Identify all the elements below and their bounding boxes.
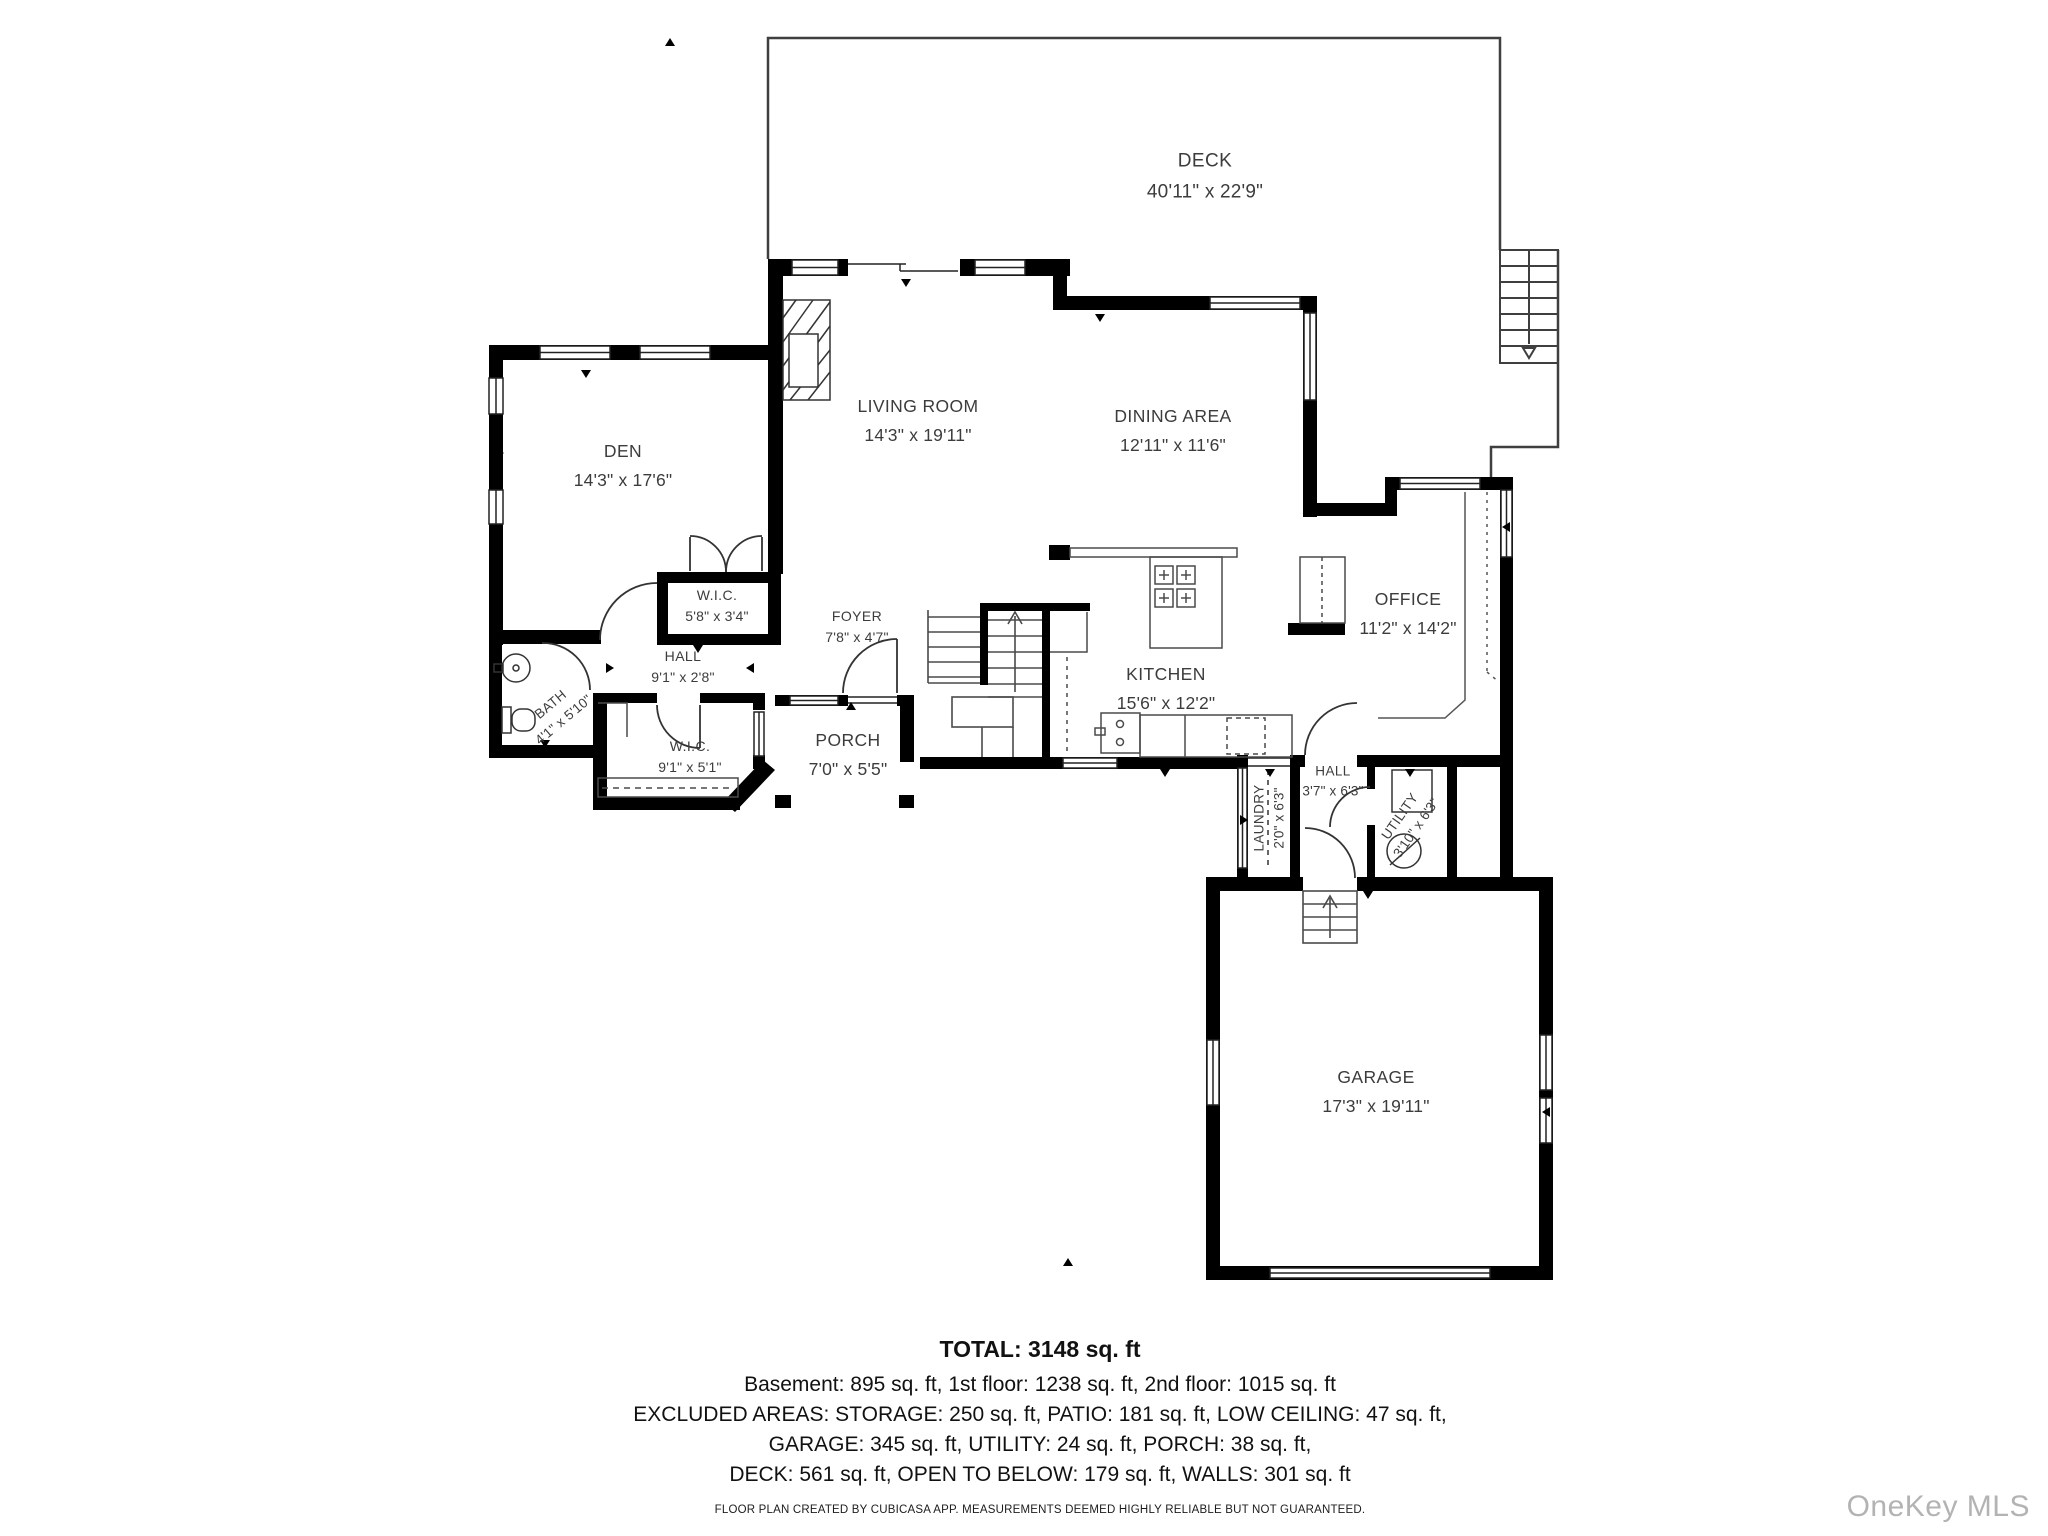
room-name: HALL — [1302, 761, 1363, 781]
disclaimer-text: FLOOR PLAN CREATED BY CUBICASA APP. MEAS… — [540, 1504, 1540, 1516]
room-dims: 14'3" x 19'11" — [857, 421, 978, 450]
floorplan-page: DECK 40'11" x 22'9" DEN 14'3" x 17'6" LI… — [0, 0, 2048, 1536]
sliding-door — [848, 259, 960, 276]
room-dims: 3'7" x 6'3" — [1302, 781, 1363, 801]
room-dims: 7'0" x 5'5" — [809, 755, 888, 784]
room-name: DECK — [1147, 146, 1263, 177]
room-dims: 11'2" x 14'2" — [1359, 614, 1456, 643]
room-dims: 9'1" x 2'8" — [651, 667, 714, 688]
room-label-dining: DINING AREA 12'11" x 11'6" — [1114, 402, 1231, 460]
room-label-den: DEN 14'3" x 17'6" — [574, 437, 673, 495]
floorplan-svg — [0, 0, 2048, 1536]
room-label-hall-main: HALL 9'1" x 2'8" — [651, 646, 714, 688]
room-name: W.I.C. — [685, 585, 748, 606]
room-name: OFFICE — [1359, 585, 1456, 614]
summary-line-garage: GARAGE: 345 sq. ft, UTILITY: 24 sq. ft, … — [540, 1430, 1540, 1460]
kitchen-counter — [1050, 548, 1345, 757]
laundry-sill — [1248, 758, 1290, 766]
room-name: DEN — [574, 437, 673, 466]
room-dims: 2'0" x 6'3" — [1269, 784, 1289, 851]
room-dims: 14'3" x 17'6" — [574, 466, 673, 495]
total-area: TOTAL: 3148 sq. ft — [540, 1336, 1540, 1363]
watermark-onekey-mls: OneKey MLS — [1847, 1490, 2030, 1524]
room-label-living: LIVING ROOM 14'3" x 19'11" — [857, 392, 978, 450]
room-dims: 15'6" x 12'2" — [1117, 689, 1216, 718]
room-name: LAUNDRY — [1249, 784, 1269, 851]
room-label-deck: DECK 40'11" x 22'9" — [1147, 146, 1263, 209]
room-label-garage: GARAGE 17'3" x 19'11" — [1322, 1063, 1429, 1121]
room-dims: 5'8" x 3'4" — [685, 606, 748, 627]
garage-steps — [1303, 891, 1357, 943]
room-label-wic-lower: W.I.C. 9'1" x 5'1" — [658, 736, 721, 778]
room-name: GARAGE — [1322, 1063, 1429, 1092]
room-label-wic-upper: W.I.C. 5'8" x 3'4" — [685, 585, 748, 627]
room-name: HALL — [651, 646, 714, 667]
room-name: KITCHEN — [1117, 660, 1216, 689]
summary-line-deck: DECK: 561 sq. ft, OPEN TO BELOW: 179 sq.… — [540, 1460, 1540, 1490]
room-dims: 9'1" x 5'1" — [658, 757, 721, 778]
room-label-office: OFFICE 11'2" x 14'2" — [1359, 585, 1456, 643]
front-door-sill — [848, 697, 897, 703]
fireplace — [783, 300, 830, 400]
room-name: LIVING ROOM — [857, 392, 978, 421]
room-name: DINING AREA — [1114, 402, 1231, 431]
room-name: FOYER — [825, 606, 888, 627]
summary-line-floors: Basement: 895 sq. ft, 1st floor: 1238 sq… — [540, 1370, 1540, 1400]
garage-door — [1270, 1268, 1490, 1278]
area-summary: TOTAL: 3148 sq. ft Basement: 895 sq. ft,… — [540, 1336, 1540, 1490]
room-dims: 7'8" x 4'7" — [825, 627, 888, 648]
room-label-laundry: LAUNDRY 2'0" x 6'3" — [1249, 784, 1288, 851]
room-label-porch: PORCH 7'0" x 5'5" — [809, 726, 888, 784]
room-dims: 40'11" x 22'9" — [1147, 177, 1263, 208]
room-name: PORCH — [809, 726, 888, 755]
room-label-hall-small: HALL 3'7" x 6'3" — [1302, 761, 1363, 800]
room-name: W.I.C. — [658, 736, 721, 757]
room-dims: 17'3" x 19'11" — [1322, 1092, 1429, 1121]
deck-stairs — [1500, 250, 1558, 363]
room-label-foyer: FOYER 7'8" x 4'7" — [825, 606, 888, 648]
kitchen-island — [1150, 557, 1222, 648]
room-dims: 12'11" x 11'6" — [1114, 431, 1231, 460]
room-label-kitchen: KITCHEN 15'6" x 12'2" — [1117, 660, 1216, 718]
summary-line-excluded: EXCLUDED AREAS: STORAGE: 250 sq. ft, PAT… — [540, 1400, 1540, 1430]
